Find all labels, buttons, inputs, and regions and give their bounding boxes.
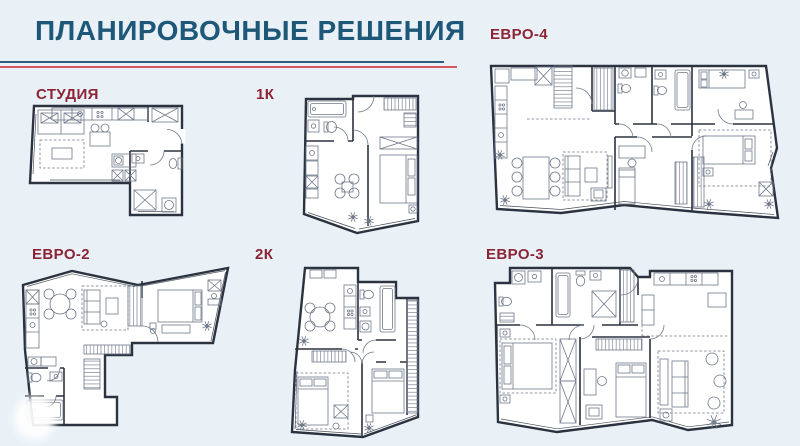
- floorplan-1k-drawing: [296, 93, 426, 238]
- title-underline-teal: [0, 61, 444, 63]
- plan-card-euro3: ЕВРО-3: [486, 246, 741, 444]
- plan-label-2k: 2К: [255, 246, 273, 263]
- plan-label-1k: 1К: [256, 86, 274, 103]
- floorplan-euro4-drawing: [487, 62, 783, 224]
- floorplan-euro3-drawing: [492, 265, 737, 443]
- plan-label-euro2: ЕВРО-2: [32, 246, 90, 263]
- watermark: [14, 396, 56, 440]
- plan-card-1k: 1К: [256, 86, 426, 238]
- plan-label-euro4: ЕВРО-4: [490, 26, 548, 43]
- page-title: ПЛАНИРОВОЧНЫЕ РЕШЕНИЯ: [35, 15, 466, 47]
- plan-card-2k: 2К: [255, 246, 425, 444]
- plan-card-euro4: ЕВРО-4: [487, 26, 787, 226]
- title-underline-red: [0, 66, 457, 68]
- plan-label-euro3: ЕВРО-3: [486, 246, 544, 263]
- floorplan-2k-drawing: [290, 265, 422, 443]
- plan-label-studio: СТУДИЯ: [36, 86, 99, 103]
- slide: ПЛАНИРОВОЧНЫЕ РЕШЕНИЯ СТУДИЯ: [0, 0, 800, 446]
- floorplan-studio-drawing: [28, 102, 190, 230]
- plan-card-studio: СТУДИЯ: [28, 86, 200, 232]
